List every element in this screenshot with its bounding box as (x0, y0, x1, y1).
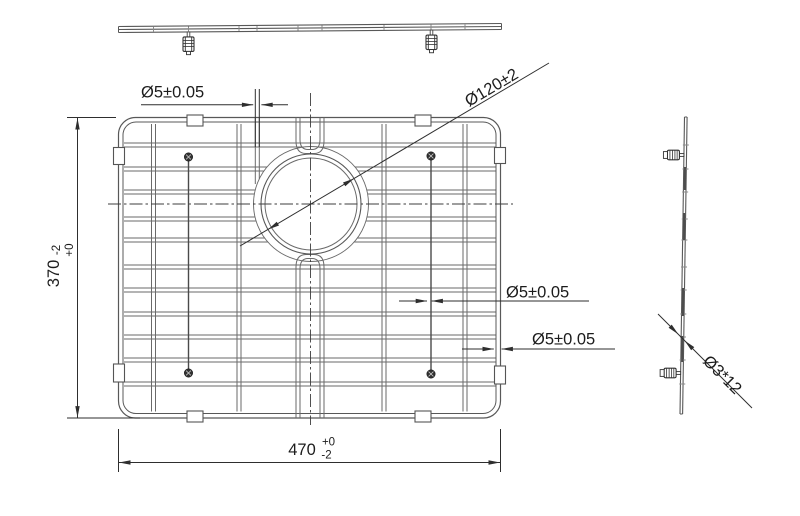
top-bar-line (119, 24, 502, 27)
dimension-annotations (67, 63, 752, 472)
side-wire-strip (683, 213, 685, 240)
dimension-arrow-icon (683, 339, 694, 350)
label-height: 370 (45, 260, 63, 288)
dimension-arrow-icon (75, 406, 79, 418)
dimension-arrow-icon (483, 347, 495, 351)
mounting-tab (114, 148, 125, 165)
mounting-tab (495, 366, 506, 384)
side-wire-strip (682, 288, 684, 316)
height-tol-plus-text: +0 (64, 243, 76, 256)
dimension-arrow-icon (489, 460, 501, 464)
dimension-arrow-icon (261, 103, 273, 107)
foot-body (183, 37, 194, 52)
label-width-tol-plus: +0 (322, 437, 335, 449)
height-tol-minus-text: -2 (51, 245, 63, 255)
foot-tip (430, 50, 434, 53)
wire-col-bent (300, 259, 320, 419)
label-width-tol-minus: -2 (321, 450, 331, 462)
side-view (660, 117, 689, 414)
drawing-page: Ø5±0.05 Ø120±2 Ø5±0.05 Ø5±0.05 370 +0 -2… (0, 0, 800, 516)
mounting-tab (187, 411, 203, 422)
foot-body (667, 150, 679, 160)
top-view (119, 24, 502, 55)
top-bar-line (119, 27, 502, 30)
label-height-value: 370 (45, 260, 63, 288)
foot-tip (187, 51, 191, 54)
mounting-tab (415, 115, 431, 126)
foot-size-text: Ø3*12 (699, 352, 745, 398)
dimension-arrow-icon (416, 299, 428, 303)
foot-body (664, 368, 676, 378)
dimension-arrow-icon (242, 103, 254, 107)
mounting-tab (415, 411, 431, 422)
front-view (108, 93, 513, 425)
foot-tip (663, 152, 667, 159)
side-wire-strip (684, 167, 686, 190)
dimension-arrow-icon (669, 325, 680, 336)
mounting-tab (495, 148, 506, 164)
drawing-canvas: Ø5±0.05 Ø120±2 Ø5±0.05 Ø5±0.05 370 +0 -2… (0, 0, 800, 516)
top-bar-line (119, 30, 502, 33)
dimension-arrow-icon (501, 347, 513, 351)
mounting-tab (114, 364, 125, 382)
foot-body (426, 35, 437, 50)
label-wire-diameter-mid: Ø5±0.05 (506, 284, 569, 302)
dimension-arrow-icon (119, 460, 131, 464)
dimension-arrow-icon (75, 118, 79, 130)
label-height-tol-plus: +0 (64, 243, 76, 256)
label-height-tol-minus: -2 (51, 245, 63, 255)
mounting-tab (187, 115, 203, 126)
label-foot-size: Ø3*12 (699, 352, 745, 398)
label-wire-diameter-top: Ø5±0.05 (141, 84, 204, 102)
dimension-arrow-icon (431, 299, 443, 303)
side-wire-strip (681, 336, 683, 362)
label-wire-diameter-frame: Ø5±0.05 (532, 331, 595, 349)
dimension-labels: Ø5±0.05 Ø120±2 Ø5±0.05 Ø5±0.05 370 +0 -2… (45, 65, 745, 461)
label-width-value: 470 (288, 441, 316, 459)
foot-tip (660, 370, 664, 377)
label-hole-diameter: Ø120±2 (462, 65, 522, 110)
